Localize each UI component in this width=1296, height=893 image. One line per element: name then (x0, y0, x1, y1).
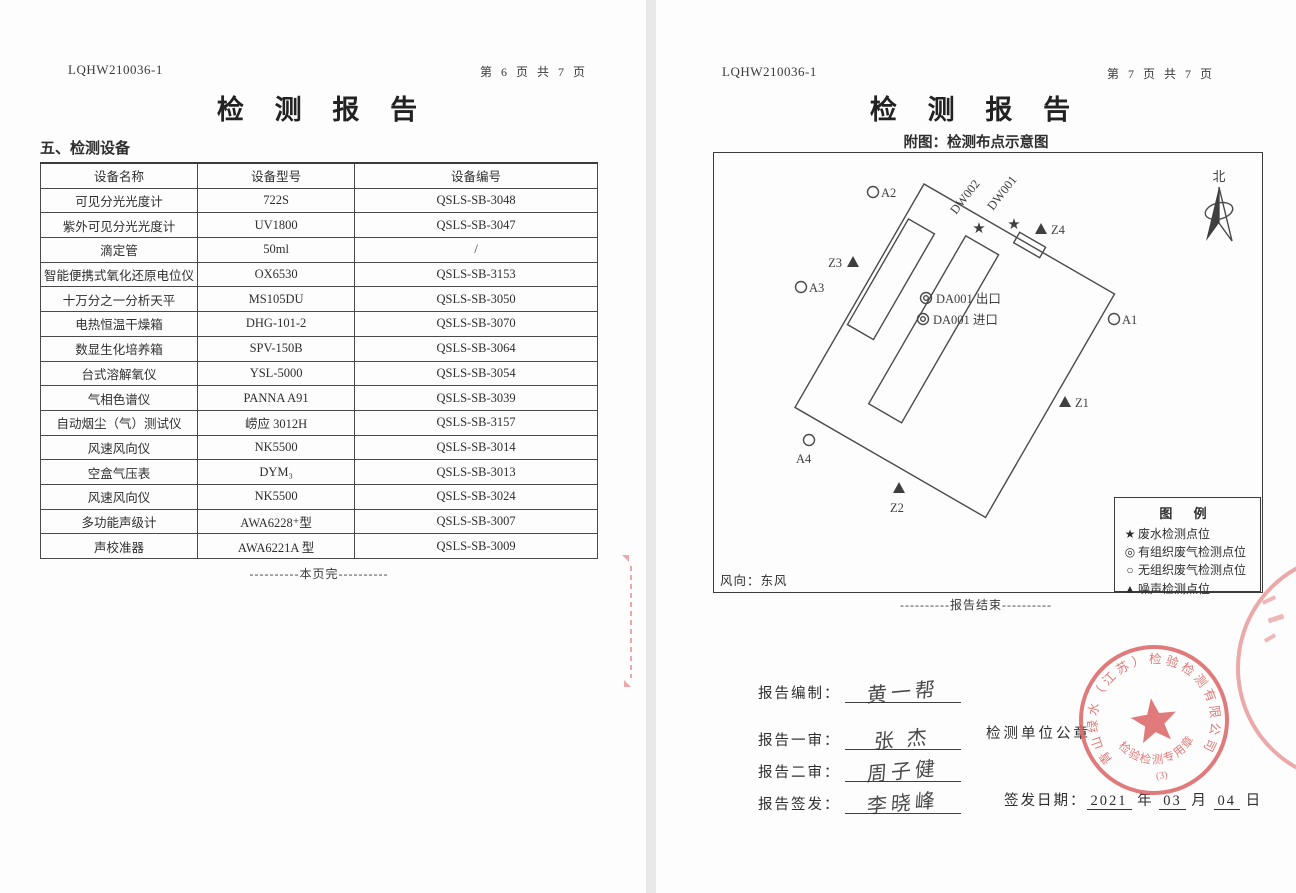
point-Z2-triangle-icon (893, 482, 905, 493)
legend-label: 噪声检测点位 (1138, 582, 1210, 596)
table-cell: 台式溶解氧仪 (41, 361, 198, 386)
table-cell: QSLS-SB-3054 (355, 361, 598, 386)
table-cell: 滴定管 (41, 238, 198, 263)
table-cell: DHG-101-2 (198, 312, 355, 337)
label-Z2: Z2 (890, 501, 904, 515)
page-number: 第 6 页 共 7 页 (480, 63, 588, 80)
table-cell: QSLS-SB-3157 (355, 410, 598, 435)
legend-symbol-icon: ○ (1122, 561, 1138, 579)
table-cell: 多功能声级计 (41, 509, 198, 534)
legend-item: ★废水检测点位 (1122, 525, 1260, 543)
diagram-subtitle: 附图：检测布点示意图 (656, 131, 1296, 152)
table-cell: AWA6228⁺型 (198, 509, 355, 534)
legend-label: 废水检测点位 (1138, 527, 1210, 541)
label-DA001-in: DA001 进口 (933, 313, 998, 327)
table-cell: 电热恒温干燥箱 (41, 312, 198, 337)
table-cell: MS105DU (198, 287, 355, 312)
label-Z3: Z3 (828, 256, 842, 270)
table-cell: QSLS-SB-3014 (355, 435, 598, 460)
table-cell: NK5500 (198, 435, 355, 460)
stamp-number: (3) (1155, 770, 1168, 783)
signature-line: 黄一帮 (845, 676, 961, 703)
signature-handwriting: 李晓峰 (866, 784, 940, 820)
doc-number: LQHW210036-1 (68, 62, 163, 78)
issue-date-label: 签发日期： (1004, 793, 1087, 809)
point-DA001-in-icon (918, 314, 929, 325)
table-row: 十万分之一分析天平MS105DUQSLS-SB-3050 (41, 287, 598, 312)
legend-item: ◎有组织废气检测点位 (1122, 543, 1260, 561)
label-DW002: DW002 (947, 177, 982, 217)
page-end-note: ----------本页完---------- (40, 565, 598, 582)
factory-building (795, 179, 1118, 518)
table-row: 电热恒温干燥箱DHG-101-2QSLS-SB-3070 (41, 312, 598, 337)
table-cell: QSLS-SB-3039 (355, 386, 598, 411)
table-row: 自动烟尘（气）测试仪崂应 3012HQSLS-SB-3157 (41, 410, 598, 435)
signature-handwriting: 张 杰 (873, 720, 932, 754)
table-cell: 数显生化培养箱 (41, 336, 198, 361)
table-cell: QSLS-SB-3013 (355, 460, 598, 485)
table-row: 气相色谱仪PANNA A91QSLS-SB-3039 (41, 386, 598, 411)
stamp-star-icon (1128, 695, 1179, 744)
table-cell: QSLS-SB-3070 (355, 312, 598, 337)
table-cell: 崂应 3012H (198, 410, 355, 435)
month-unit: 月 (1191, 793, 1208, 809)
label-A2: A2 (881, 186, 896, 200)
table-cell: 722S (198, 188, 355, 213)
layout-diagram: ★ ★ A2 A3 A1 A4 Z4 Z3 Z1 Z2 DW002 DW001 … (713, 152, 1263, 593)
table-cell: PANNA A91 (198, 386, 355, 411)
signature-line: 周子健 (845, 755, 961, 782)
table-row: 滴定管50ml/ (41, 238, 598, 263)
table-row: 空盒气压表DYM₃QSLS-SB-3013 (41, 460, 598, 485)
table-cell: UV1800 (198, 213, 355, 238)
north-label: 北 (1212, 169, 1225, 184)
table-cell: 紫外可见分光光度计 (41, 213, 198, 238)
point-A1-circle-icon (1109, 314, 1120, 325)
report-title: 检 测 报 告 (0, 88, 646, 127)
section-heading: 五、检测设备 (40, 137, 130, 158)
point-A4-circle-icon (804, 435, 815, 446)
table-cell: DYM₃ (198, 460, 355, 485)
table-row: 智能便携式氧化还原电位仪OX6530QSLS-SB-3153 (41, 262, 598, 287)
sign-row-issued: 报告签发：李晓峰 (758, 787, 961, 814)
report-page-6: LQHW210036-1 第 6 页 共 7 页 检 测 报 告 五、检测设备 … (0, 0, 646, 893)
report-title: 检 测 报 告 (656, 88, 1296, 127)
table-cell: QSLS-SB-3047 (355, 213, 598, 238)
point-DW002-star-icon: ★ (972, 221, 985, 237)
table-cell: QSLS-SB-3007 (355, 509, 598, 534)
sign-label: 报告编制： (758, 686, 841, 702)
table-cell: 空盒气压表 (41, 460, 198, 485)
table-row: 声校准器AWA6221A 型QSLS-SB-3009 (41, 534, 598, 559)
signature-handwriting: 黄一帮 (866, 673, 940, 709)
wind-direction-note: 风向：东风 (720, 570, 788, 589)
label-A1: A1 (1122, 313, 1137, 327)
column-header: 设备型号 (198, 163, 355, 188)
seal-fragment (622, 555, 629, 562)
sign-label: 报告一审： (758, 733, 841, 749)
point-Z1-triangle-icon (1059, 396, 1071, 407)
report-end-note: ----------报告结束---------- (656, 596, 1296, 613)
doc-number: LQHW210036-1 (722, 64, 817, 80)
stamp-type-text: 检验检测专用章 (1115, 729, 1200, 772)
label-Z1: Z1 (1075, 396, 1089, 410)
sign-row-review1: 报告一审：张 杰 (758, 723, 961, 750)
table-cell: YSL-5000 (198, 361, 355, 386)
sign-label: 报告二审： (758, 765, 841, 781)
table-cell: 风速风向仪 (41, 435, 198, 460)
point-A3-circle-icon (796, 282, 807, 293)
label-Z4: Z4 (1051, 223, 1066, 237)
report-page-7: LQHW210036-1 第 7 页 共 7 页 检 测 报 告 附图：检测布点… (656, 0, 1296, 893)
legend-symbol-icon: ◎ (1122, 543, 1138, 561)
sign-label: 报告签发： (758, 797, 841, 813)
seal-fragment (624, 680, 631, 687)
table-cell: QSLS-SB-3048 (355, 188, 598, 213)
table-row: 台式溶解氧仪YSL-5000QSLS-SB-3054 (41, 361, 598, 386)
table-row: 风速风向仪NK5500QSLS-SB-3024 (41, 484, 598, 509)
table-cell: OX6530 (198, 262, 355, 287)
table-cell: 可见分光光度计 (41, 188, 198, 213)
table-cell: QSLS-SB-3050 (355, 287, 598, 312)
signature-line: 李晓峰 (845, 787, 961, 814)
table-cell: 声校准器 (41, 534, 198, 559)
issue-day: 04 (1214, 793, 1241, 810)
legend-label: 无组织废气检测点位 (1138, 563, 1246, 577)
signature-line: 张 杰 (845, 723, 961, 750)
label-A3: A3 (809, 281, 824, 295)
table-row: 数显生化培养箱SPV-150BQSLS-SB-3064 (41, 336, 598, 361)
table-row: 风速风向仪NK5500QSLS-SB-3014 (41, 435, 598, 460)
legend-item: ○无组织废气检测点位 (1122, 561, 1260, 579)
legend-label: 有组织废气检测点位 (1138, 545, 1246, 559)
day-unit: 日 (1246, 793, 1263, 809)
table-cell: 自动烟尘（气）测试仪 (41, 410, 198, 435)
table-row: 可见分光光度计722SQSLS-SB-3048 (41, 188, 598, 213)
table-cell: SPV-150B (198, 336, 355, 361)
table-cell: QSLS-SB-3009 (355, 534, 598, 559)
table-cell: / (355, 238, 598, 263)
legend-title: 图 例 (1115, 503, 1260, 522)
point-Z3-triangle-icon (847, 256, 859, 267)
table-cell: QSLS-SB-3024 (355, 484, 598, 509)
label-A4: A4 (796, 452, 812, 466)
legend-items: ★废水检测点位◎有组织废气检测点位○无组织废气检测点位▲噪声检测点位 (1115, 525, 1260, 598)
table-cell: QSLS-SB-3153 (355, 262, 598, 287)
table-cell: 50ml (198, 238, 355, 263)
table-cell: NK5500 (198, 484, 355, 509)
legend-symbol-icon: ★ (1122, 525, 1138, 543)
table-cell: 智能便携式氧化还原电位仪 (41, 262, 198, 287)
table-header-row: 设备名称 设备型号 设备编号 (41, 163, 598, 188)
legend-box: 图 例 ★废水检测点位◎有组织废气检测点位○无组织废气检测点位▲噪声检测点位 (1114, 497, 1261, 592)
workshop-right (869, 236, 999, 423)
column-header: 设备名称 (41, 163, 198, 188)
compass-needle-west-icon (1206, 187, 1219, 241)
table-cell: 十万分之一分析天平 (41, 287, 198, 312)
svg-text:检验检测专用章: 检验检测专用章 (1115, 729, 1200, 772)
point-A2-circle-icon (868, 187, 879, 198)
table-cell: QSLS-SB-3064 (355, 336, 598, 361)
table-cell: 气相色谱仪 (41, 386, 198, 411)
sign-row-prepared: 报告编制：黄一帮 (758, 676, 961, 703)
equipment-table: 设备名称 设备型号 设备编号 可见分光光度计722SQSLS-SB-3048紫外… (40, 162, 598, 559)
sign-row-review2: 报告二审：周子健 (758, 755, 961, 782)
point-DW001-star-icon: ★ (1007, 217, 1020, 233)
seal-fragment (630, 566, 632, 678)
table-row: 紫外可见分光光度计UV1800QSLS-SB-3047 (41, 213, 598, 238)
table-cell: 风速风向仪 (41, 484, 198, 509)
point-Z4-triangle-icon (1035, 223, 1047, 234)
table-row: 多功能声级计AWA6228⁺型QSLS-SB-3007 (41, 509, 598, 534)
signature-handwriting: 周子健 (866, 752, 940, 788)
label-DA001-out: DA001 出口 (936, 292, 1001, 306)
page-number: 第 7 页 共 7 页 (1107, 65, 1215, 82)
label-DW001: DW001 (984, 173, 1019, 213)
table-cell: AWA6221A 型 (198, 534, 355, 559)
column-header: 设备编号 (355, 163, 598, 188)
company-stamp: 青山绿水（江苏）检验检测有限公司 检验检测专用章 (3) (1066, 632, 1242, 808)
